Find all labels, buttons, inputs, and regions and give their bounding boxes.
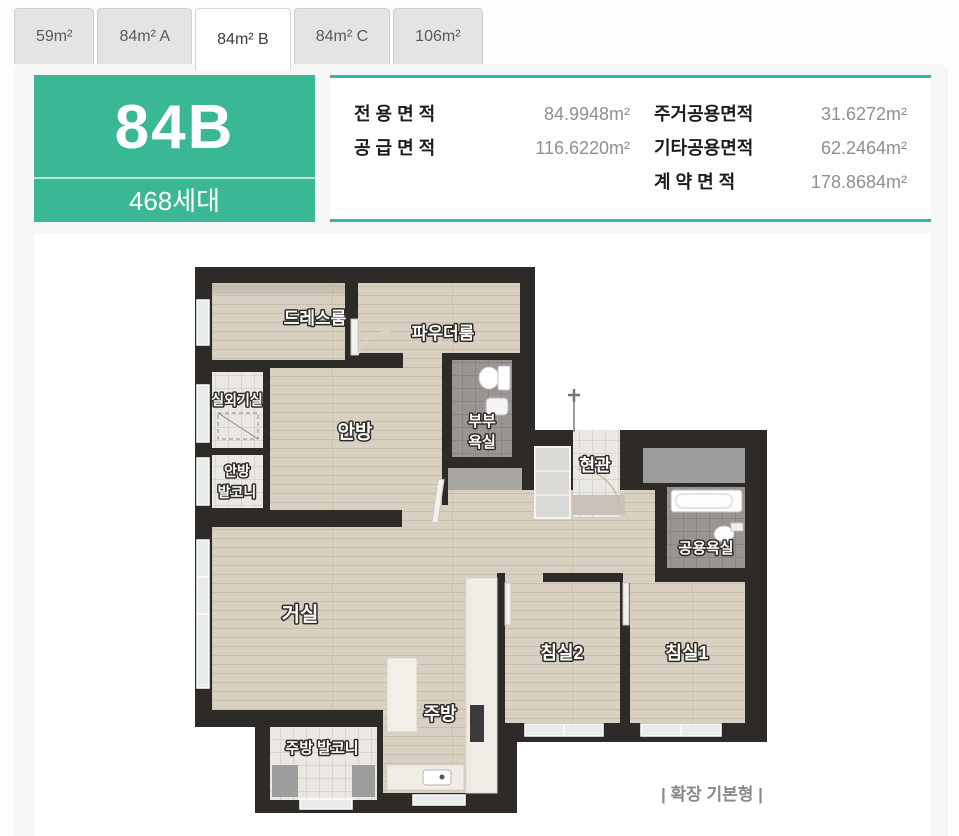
door-bedroom2 — [505, 583, 511, 625]
bathtub-common-bath — [671, 490, 742, 512]
balcony-storage-right — [352, 765, 375, 797]
floorplan-image: 드레스룸 파우더룸 실외기실 안방 부부 욕실 안방 발코니 현관 공용욕실 거… — [34, 233, 931, 836]
area-row-exclusive: 전 용 면 적 84.9948m² — [354, 97, 654, 131]
kitchen-island — [387, 658, 417, 732]
kitchen-counter — [466, 578, 497, 793]
toilet-master-bath — [479, 367, 499, 389]
label-dressroom: 드레스룸 — [284, 309, 347, 328]
label-common-bath: 공용욕실 — [678, 540, 733, 557]
label-kitchen-balcony: 주방 발코니 — [285, 739, 358, 757]
unit-name: 84B — [34, 75, 315, 179]
label-kitchen: 주방 — [423, 704, 457, 724]
label-master-bath-2: 욕실 — [468, 434, 496, 451]
area-label: 전 용 면 적 — [354, 97, 470, 131]
area-label: 공 급 면 적 — [354, 131, 470, 165]
area-info-left-column: 전 용 면 적 84.9948m² 공 급 면 적 116.6220m² — [354, 97, 654, 219]
label-master-balcony-2: 발코니 — [218, 484, 257, 500]
area-label: 계 약 면 적 — [654, 165, 782, 199]
area-value: 116.6220m² — [470, 131, 654, 165]
label-outdoor-unit: 실외기실 — [211, 392, 263, 408]
content-card: 84B 468세대 전 용 면 적 84.9948m² 공 급 면 적 116.… — [14, 64, 948, 836]
kitchen-appliance — [470, 705, 484, 742]
area-row-supply: 공 급 면 적 116.6220m² — [354, 131, 654, 165]
area-row-residential-common: 주거공용면적 31.6272m² — [654, 97, 907, 131]
label-master-balcony-1: 안방 — [224, 463, 250, 479]
area-value: 178.8684m² — [782, 165, 907, 199]
door-bedroom1 — [623, 583, 629, 625]
label-entry: 현관 — [579, 456, 611, 475]
closet-master — [448, 468, 522, 490]
area-value: 62.2464m² — [782, 131, 907, 165]
area-info-right-column: 주거공용면적 31.6272m² 기타공용면적 62.2464m² 계 약 면 … — [654, 97, 907, 219]
tab-84b[interactable]: 84m² B — [195, 8, 291, 70]
label-bedroom1: 침실1 — [665, 643, 708, 663]
closet-entry-right — [643, 448, 745, 483]
area-info-table: 전 용 면 적 84.9948m² 공 급 면 적 116.6220m² 주거공… — [330, 75, 931, 222]
door-dressroom — [351, 319, 358, 355]
unit-households: 468세대 — [34, 179, 315, 222]
tab-106[interactable]: 106m² — [393, 8, 482, 64]
area-row-other-common: 기타공용면적 62.2464m² — [654, 131, 907, 165]
area-value: 84.9948m² — [470, 97, 654, 131]
closet-entry-left — [535, 447, 570, 518]
area-label: 기타공용면적 — [654, 131, 782, 165]
unit-type-tabbar: 59m² 84m² A 84m² B 84m² C 106m² — [14, 8, 483, 70]
entry-axis-marker-icon — [568, 389, 580, 432]
area-row-contract: 계 약 면 적 178.8684m² — [654, 165, 907, 199]
label-living: 거실 — [282, 603, 319, 626]
label-powder: 파우더룸 — [412, 324, 475, 343]
label-bedroom2: 침실2 — [540, 643, 583, 663]
area-value: 31.6272m² — [782, 97, 907, 131]
unit-badge: 84B 468세대 — [34, 75, 315, 222]
tab-59[interactable]: 59m² — [14, 8, 94, 64]
tab-84c[interactable]: 84m² C — [294, 8, 390, 64]
tab-84a[interactable]: 84m² A — [97, 8, 192, 64]
area-label: 주거공용면적 — [654, 97, 782, 131]
room-outdoor-unit — [212, 372, 263, 448]
label-master-bath-1: 부부 — [468, 413, 496, 430]
balcony-storage-left — [272, 765, 298, 797]
plan-type-caption: | 확장 기본형 | — [661, 784, 763, 804]
label-master-bedroom: 안방 — [338, 421, 373, 443]
floorplan-panel: 드레스룸 파우더룸 실외기실 안방 부부 욕실 안방 발코니 현관 공용욕실 거… — [34, 233, 931, 836]
